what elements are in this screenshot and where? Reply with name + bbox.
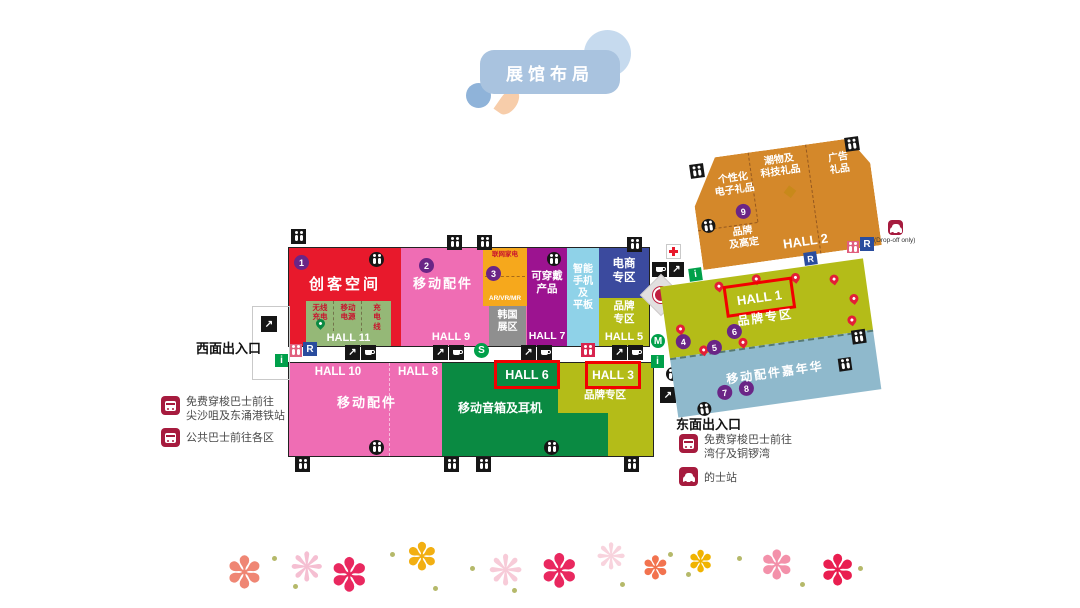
- escalator-icon: [433, 345, 448, 360]
- flower-decoration: ✽: [540, 548, 579, 594]
- numbered-badge: 3: [486, 266, 501, 281]
- zone-label: 移动配件: [401, 276, 485, 292]
- numbered-badge: 1: [294, 255, 309, 270]
- hall-label: HALL 6: [505, 368, 549, 382]
- restroom-icon: [295, 457, 310, 472]
- dot-decoration: [737, 556, 742, 561]
- registration-icon: R: [303, 342, 317, 356]
- restroom-icon: [547, 252, 561, 266]
- mtr-icon: M: [651, 334, 665, 348]
- dot-decoration: [272, 556, 277, 561]
- restroom-icon: [851, 329, 867, 345]
- zone-phones-tablets: 智能 手机 及 平板: [567, 248, 599, 346]
- flower-decoration: ✽: [406, 538, 438, 576]
- restroom-icon: [476, 457, 491, 472]
- cafe-icon: [361, 345, 376, 360]
- shuttle-bus-icon: [679, 434, 698, 453]
- shuttle-stop-icon: S: [474, 343, 489, 358]
- dot-decoration: [800, 582, 805, 587]
- hall-label: HALL 10: [303, 366, 373, 380]
- location-pin: [846, 314, 859, 327]
- registration-icon: R: [860, 237, 874, 251]
- hall-label: HALL 1: [736, 287, 783, 308]
- zone-label: 潮物及 科技礼品: [752, 151, 807, 182]
- zone-label: 品牌专区: [572, 389, 638, 402]
- dropoff-note: (Drop-off only): [874, 237, 924, 244]
- hall-label: HALL 3: [592, 368, 634, 382]
- zone-label: 品牌 专区: [599, 300, 649, 325]
- zone-label: 可穿戴 产品: [527, 270, 567, 295]
- information-icon: i: [651, 355, 664, 368]
- flower-decoration: ❋: [596, 540, 626, 576]
- restroom-icon: [627, 237, 642, 252]
- zone-label: 充 电 线: [364, 303, 390, 331]
- hall-label: HALL 5: [599, 331, 649, 344]
- hall-label: HALL 8: [395, 366, 441, 380]
- cafe-icon: [537, 345, 552, 360]
- escalator-icon: [521, 345, 536, 360]
- restroom-icon: [624, 457, 639, 472]
- hall-label: HALL 11: [306, 332, 391, 345]
- flower-decoration: ✽: [760, 546, 794, 586]
- escalator-icon: [612, 345, 627, 360]
- numbered-badge: 2: [419, 258, 434, 273]
- hall-label: HALL 2: [770, 229, 841, 254]
- flower-decoration: ✽: [330, 552, 369, 598]
- page-title: 展馆布局: [480, 50, 620, 94]
- information-icon: i: [688, 267, 703, 282]
- restroom-icon: [444, 457, 459, 472]
- dot-decoration: [858, 566, 863, 571]
- location-pin: [848, 292, 861, 305]
- zone-label: 移动音箱及耳机: [446, 401, 554, 415]
- escalator-icon: [261, 316, 277, 332]
- hall-11: 无线 充电 移动 电源 充 电 线 HALL 11: [306, 301, 391, 346]
- main-building-bottom-row: HALL 10 HALL 8 移动配件 移动音箱及耳机 品牌专区 HALL 6 …: [288, 362, 654, 457]
- zone-korea: 韩国 展区: [489, 306, 526, 346]
- nursing-room-icon: [581, 343, 595, 357]
- hall-3-extension: [608, 413, 653, 456]
- dropoff-icon: [888, 220, 903, 235]
- exhibition-layout-map: 展馆布局 创客空间 1 无线 充电 移动 电源 充 电 线 HALL 11 移动…: [0, 0, 1080, 608]
- dot-decoration: [433, 586, 438, 591]
- information-icon: i: [275, 354, 288, 367]
- dot-decoration: [390, 552, 395, 557]
- escalator-icon: [669, 262, 684, 277]
- taxi-stand-note: 的士站: [704, 471, 737, 485]
- public-bus-icon: [161, 428, 180, 447]
- east-entrance-label: 东面出入口: [676, 414, 741, 433]
- zone-label: 韩国 展区: [489, 310, 526, 334]
- hall-label: HALL 9: [411, 331, 491, 344]
- registration-icon: R: [803, 251, 818, 266]
- zone-label: AR/VR/MR: [483, 295, 527, 303]
- numbered-badge: 9: [735, 203, 752, 220]
- zone-label: 创客空间: [293, 276, 397, 294]
- flower-decoration: ✽: [820, 550, 855, 592]
- flower-decoration: ❋: [488, 550, 523, 592]
- location-pin: [737, 336, 750, 349]
- flower-decoration: ✽: [226, 552, 263, 596]
- restroom-icon: [369, 440, 384, 455]
- east-shuttle-note: 免费穿梭巴士前往 湾仔及铜锣湾: [704, 433, 792, 461]
- location-pin: [828, 273, 841, 286]
- dot-decoration: [470, 566, 475, 571]
- escalator-icon: [345, 345, 360, 360]
- hall-label: HALL 7: [527, 330, 567, 343]
- restroom-icon: [838, 357, 853, 372]
- cafe-icon: [449, 345, 464, 360]
- dot-decoration: [512, 588, 517, 593]
- hall-10-8: HALL 10 HALL 8 移动配件: [289, 363, 442, 456]
- restroom-icon: [369, 252, 384, 267]
- flower-decoration: ✽: [688, 548, 713, 578]
- restroom-icon: [447, 235, 462, 250]
- zone-label: 智能 手机 及 平板: [567, 264, 599, 312]
- first-aid-icon: [666, 244, 681, 259]
- hall3-highlight-box: HALL 3: [585, 361, 641, 389]
- west-shuttle-note: 免费穿梭巴士前往 尖沙咀及东涌港铁站: [186, 395, 285, 423]
- hall6-highlight-box: HALL 6: [494, 360, 560, 389]
- dot-decoration: [620, 582, 625, 587]
- restroom-icon: [689, 163, 705, 179]
- zone-ecommerce: 电商 专区: [599, 248, 649, 298]
- zone-label: 移动配件: [315, 395, 419, 411]
- booth-divider: [361, 301, 362, 331]
- hall-1: HALL 1 品牌专区 4 5 6 7 8 移动配件嘉年华: [660, 258, 881, 415]
- hall-5: 品牌 专区 HALL 5: [599, 298, 649, 346]
- zone-label: 移动 电源: [335, 303, 361, 322]
- west-public-bus-note: 公共巴士前往各区: [186, 431, 274, 445]
- shuttle-bus-icon: [161, 396, 180, 415]
- zone-label: 联网家电: [483, 251, 527, 259]
- west-entrance-label: 西面出入口: [196, 338, 261, 357]
- hall-7: 可穿戴 产品 HALL 7: [527, 248, 567, 346]
- cafe-icon: [628, 345, 643, 360]
- taxi-icon: [679, 467, 698, 486]
- gift-icon: [784, 185, 797, 198]
- booth-divider: [333, 301, 334, 331]
- flower-decoration: ✽: [642, 552, 669, 584]
- main-building-top-row: 创客空间 1 无线 充电 移动 电源 充 电 线 HALL 11 移动配件 HA…: [288, 247, 650, 347]
- restroom-icon: [289, 344, 302, 357]
- flower-decoration: ❋: [290, 548, 324, 588]
- dot-decoration: [686, 572, 691, 577]
- dot-decoration: [668, 552, 673, 557]
- restroom-icon: [477, 235, 492, 250]
- zone-label: 广告 礼品: [813, 149, 866, 180]
- restroom-icon: [291, 229, 306, 244]
- restroom-icon: [847, 241, 859, 253]
- restroom-icon: [844, 136, 860, 152]
- hall-6-extension: [558, 413, 608, 456]
- restroom-icon: [544, 440, 559, 455]
- dot-decoration: [293, 584, 298, 589]
- zone-label: 电商 专区: [599, 258, 649, 286]
